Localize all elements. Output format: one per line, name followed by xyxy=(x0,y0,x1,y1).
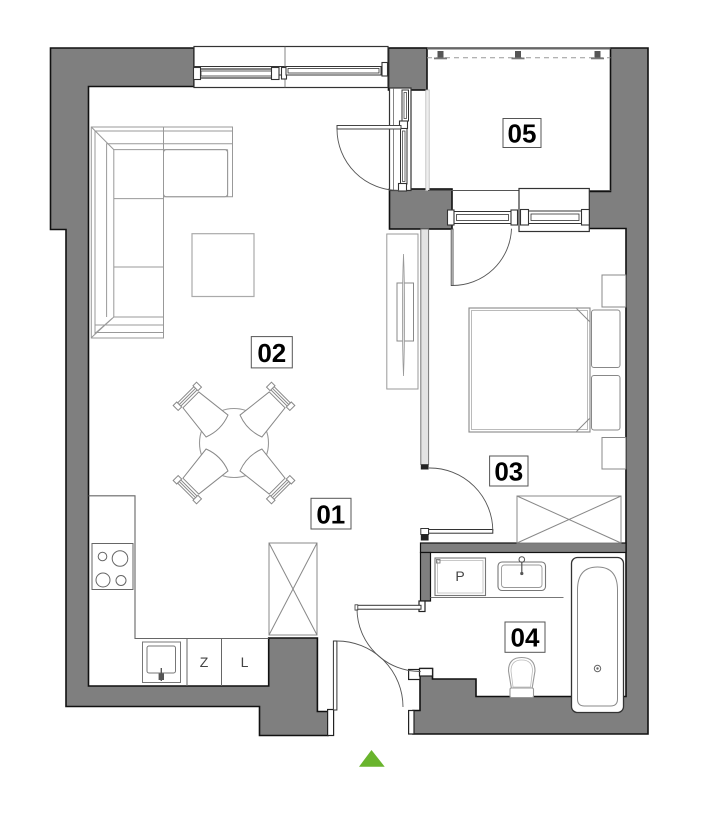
svg-text:03: 03 xyxy=(494,457,523,487)
svg-text:04: 04 xyxy=(511,623,540,653)
svg-text:02: 02 xyxy=(257,338,286,368)
svg-text:01: 01 xyxy=(316,500,345,530)
svg-text:L: L xyxy=(241,654,249,670)
svg-text:P: P xyxy=(455,568,464,584)
svg-text:05: 05 xyxy=(508,119,537,149)
svg-text:Z: Z xyxy=(200,654,209,670)
